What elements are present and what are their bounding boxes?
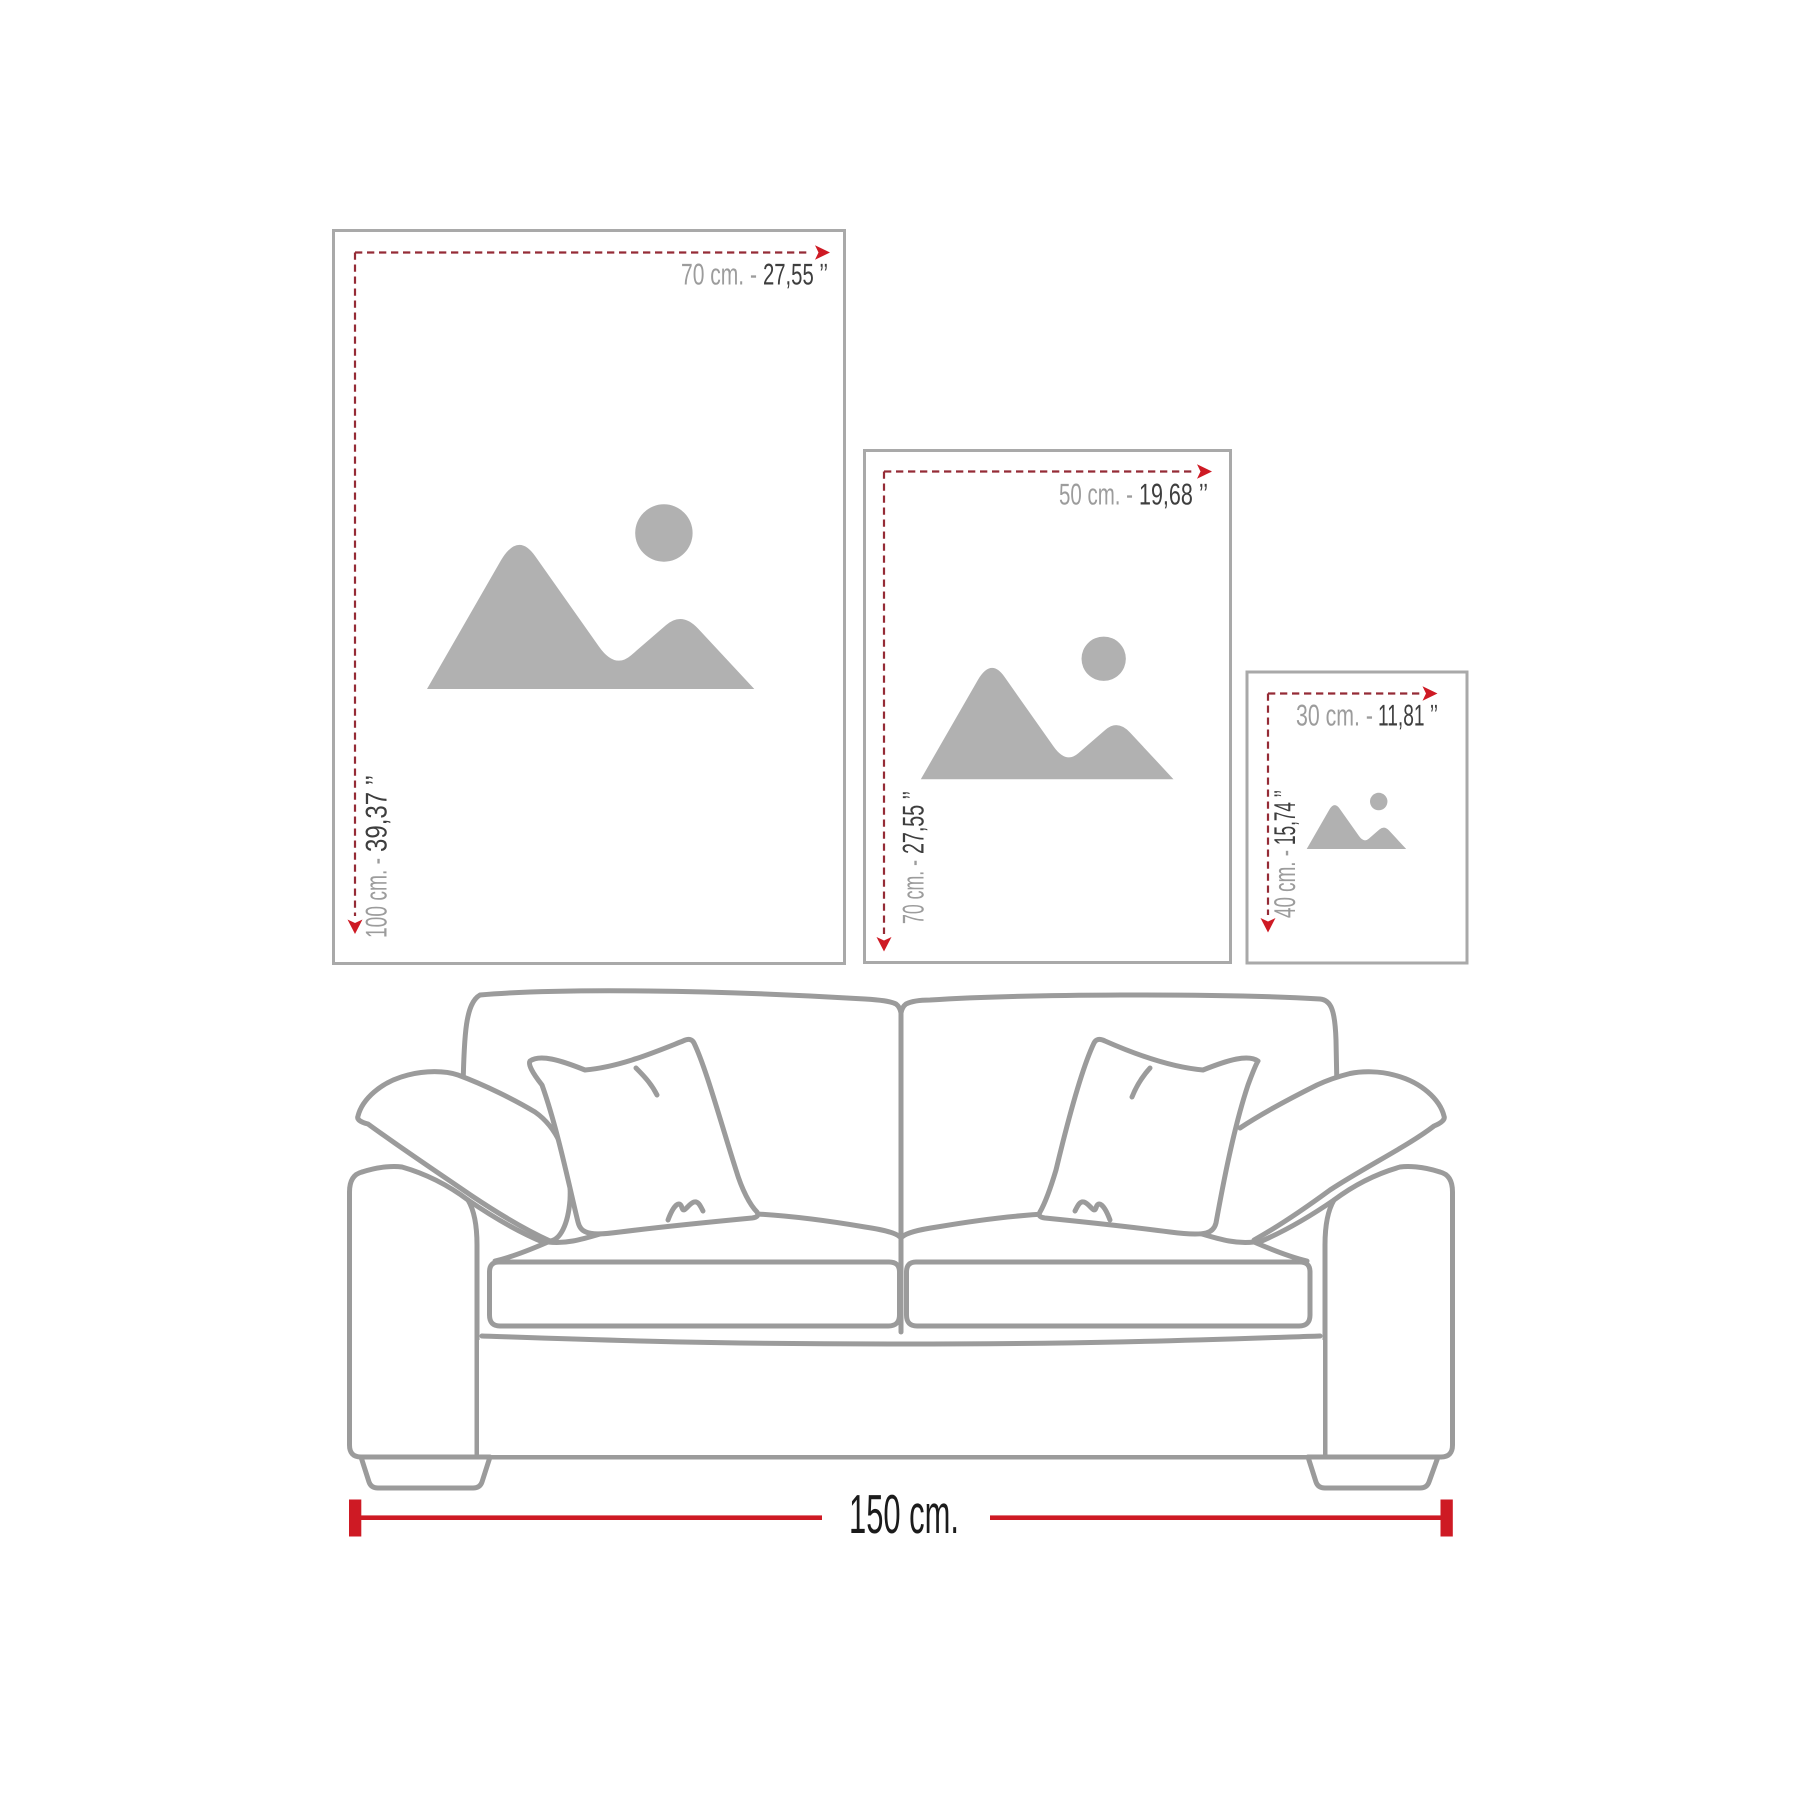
svg-text:100 cm. -: 100 cm. - xyxy=(361,858,394,938)
svg-text:50 cm. -: 50 cm. - xyxy=(1059,479,1133,512)
svg-text:150 cm.: 150 cm. xyxy=(849,1483,959,1545)
svg-text:70 cm. -: 70 cm. - xyxy=(898,860,931,924)
svg-text:40 cm. -: 40 cm. - xyxy=(1269,850,1302,918)
svg-text:19,68 ’’: 19,68 ’’ xyxy=(1139,479,1208,512)
svg-text:39,37 ’’: 39,37 ’’ xyxy=(361,775,394,852)
svg-text:30 cm. -: 30 cm. - xyxy=(1296,700,1373,733)
svg-text:11,81 ’’: 11,81 ’’ xyxy=(1378,700,1438,733)
svg-text:27,55 ’’: 27,55 ’’ xyxy=(898,791,931,854)
svg-text:27,55 ’’: 27,55 ’’ xyxy=(763,259,828,292)
svg-text:15,74 ’’: 15,74 ’’ xyxy=(1269,790,1302,845)
svg-text:70 cm. -: 70 cm. - xyxy=(681,259,757,292)
